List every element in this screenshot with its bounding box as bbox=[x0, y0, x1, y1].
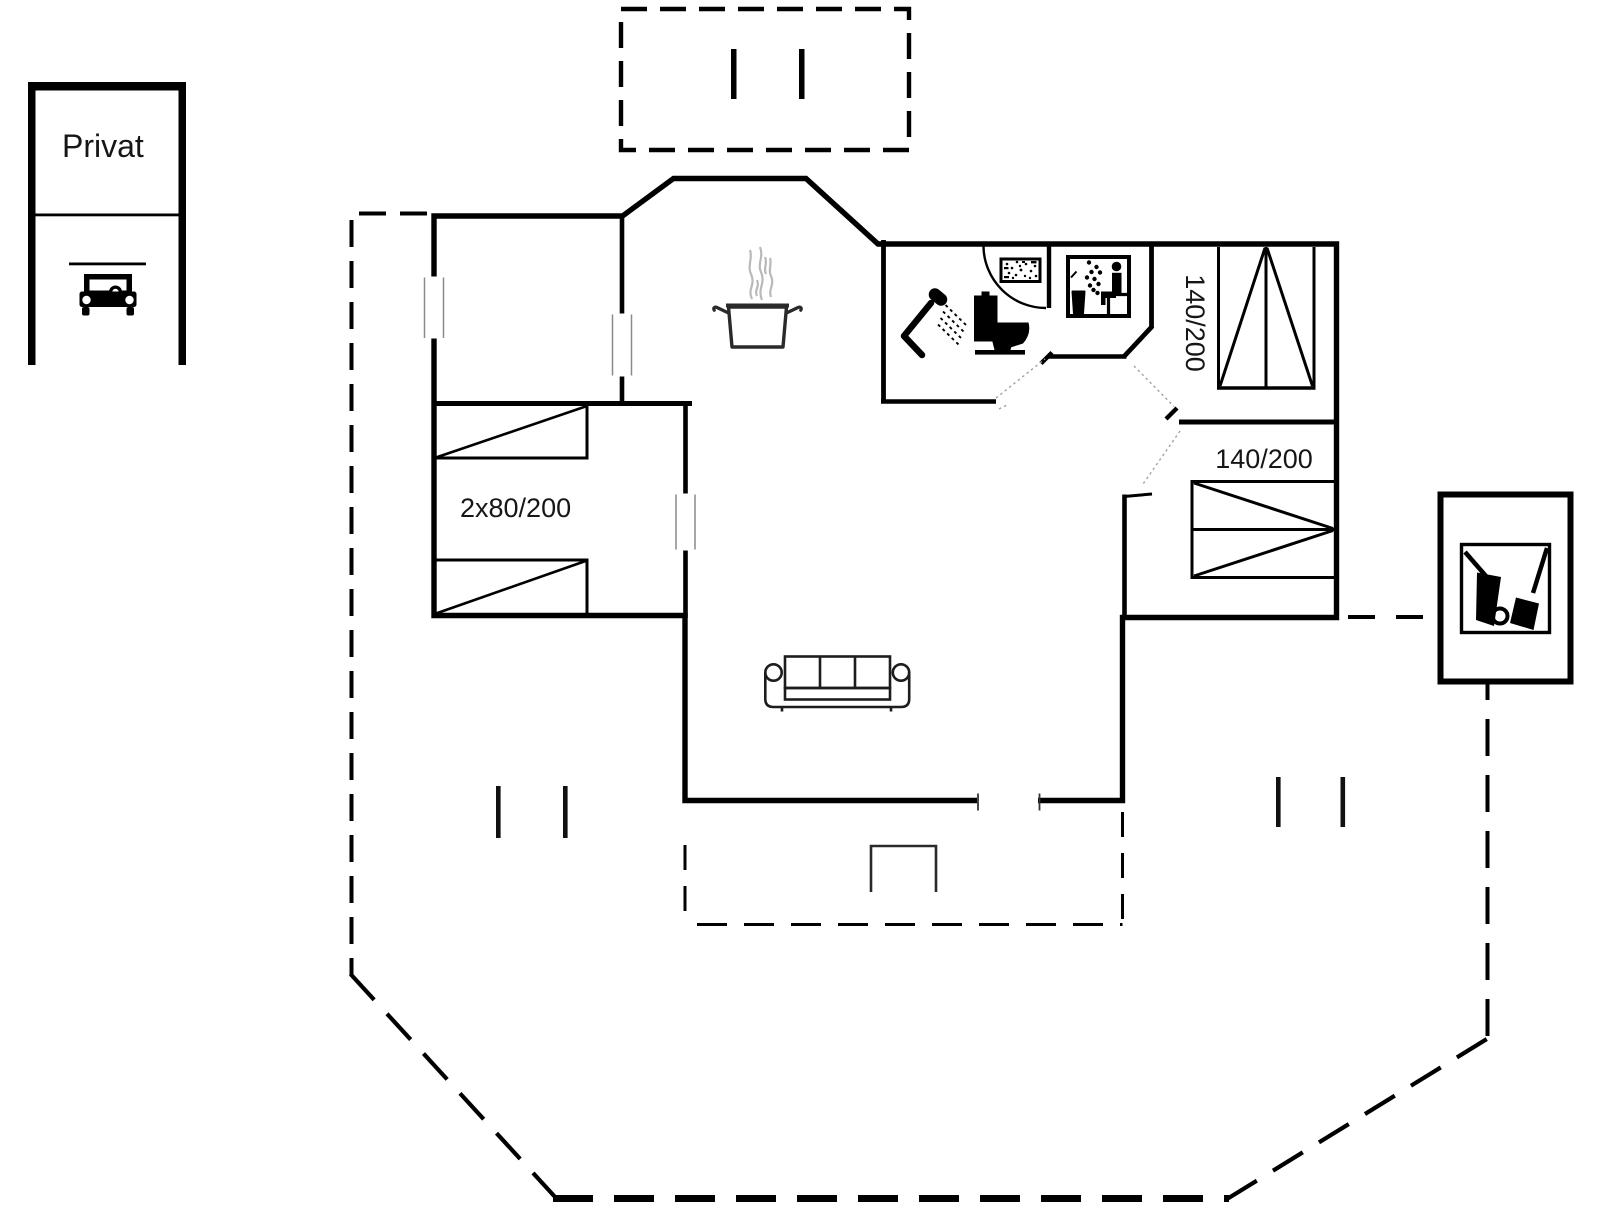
svg-text:Privat: Privat bbox=[62, 128, 144, 164]
svg-text:140/200: 140/200 bbox=[1180, 274, 1210, 372]
svg-text:140/200: 140/200 bbox=[1215, 444, 1313, 474]
svg-text:2x80/200: 2x80/200 bbox=[460, 493, 571, 523]
